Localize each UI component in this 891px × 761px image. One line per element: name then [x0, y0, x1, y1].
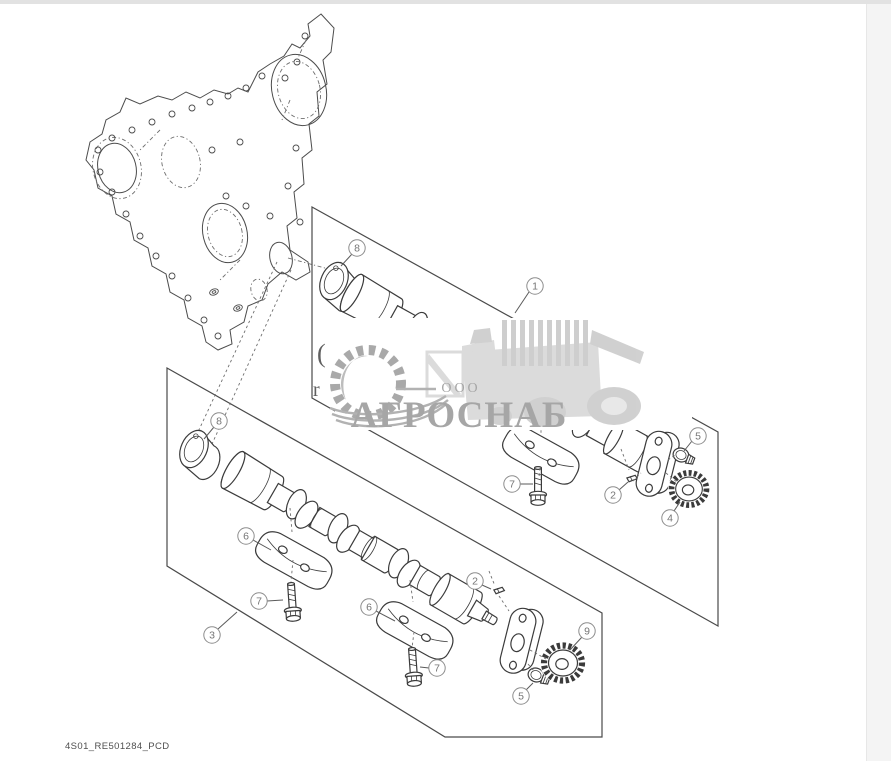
drawing-reference-label: 4S01_RE501284_PCD — [65, 741, 170, 752]
text-fragment-1: ( — [317, 339, 326, 368]
engine-front-plate — [86, 14, 334, 350]
callout-3: 3 — [204, 612, 237, 643]
svg-text:7: 7 — [434, 663, 440, 675]
exploded-diagram: ООО АГРОСНАБ ( r 8 1 7 — [0, 0, 891, 761]
parts-diagram-page: ООО АГРОСНАБ ( r 8 1 7 — [0, 0, 891, 761]
watermark: ООО АГРОСНАБ — [330, 318, 692, 436]
svg-text:4: 4 — [667, 513, 673, 525]
svg-text:5: 5 — [695, 431, 701, 443]
svg-text:1: 1 — [532, 281, 538, 293]
text-fragment-2: r — [313, 379, 320, 401]
svg-text:3: 3 — [209, 630, 215, 642]
svg-text:8: 8 — [354, 243, 360, 255]
watermark-company-prefix: ООО — [441, 381, 480, 396]
svg-text:5: 5 — [518, 691, 524, 703]
callout-1: 1 — [515, 278, 543, 313]
svg-text:9: 9 — [584, 626, 590, 638]
drive-gear-9 — [540, 642, 586, 684]
svg-text:6: 6 — [243, 531, 249, 543]
svg-text:2: 2 — [472, 576, 478, 588]
svg-text:6: 6 — [366, 602, 372, 614]
svg-text:2: 2 — [610, 490, 616, 502]
svg-text:8: 8 — [216, 416, 222, 428]
svg-text:7: 7 — [256, 596, 262, 608]
svg-text:7: 7 — [509, 479, 515, 491]
drive-gear-4 — [668, 470, 710, 509]
watermark-company-name: АГРОСНАБ — [351, 395, 568, 436]
